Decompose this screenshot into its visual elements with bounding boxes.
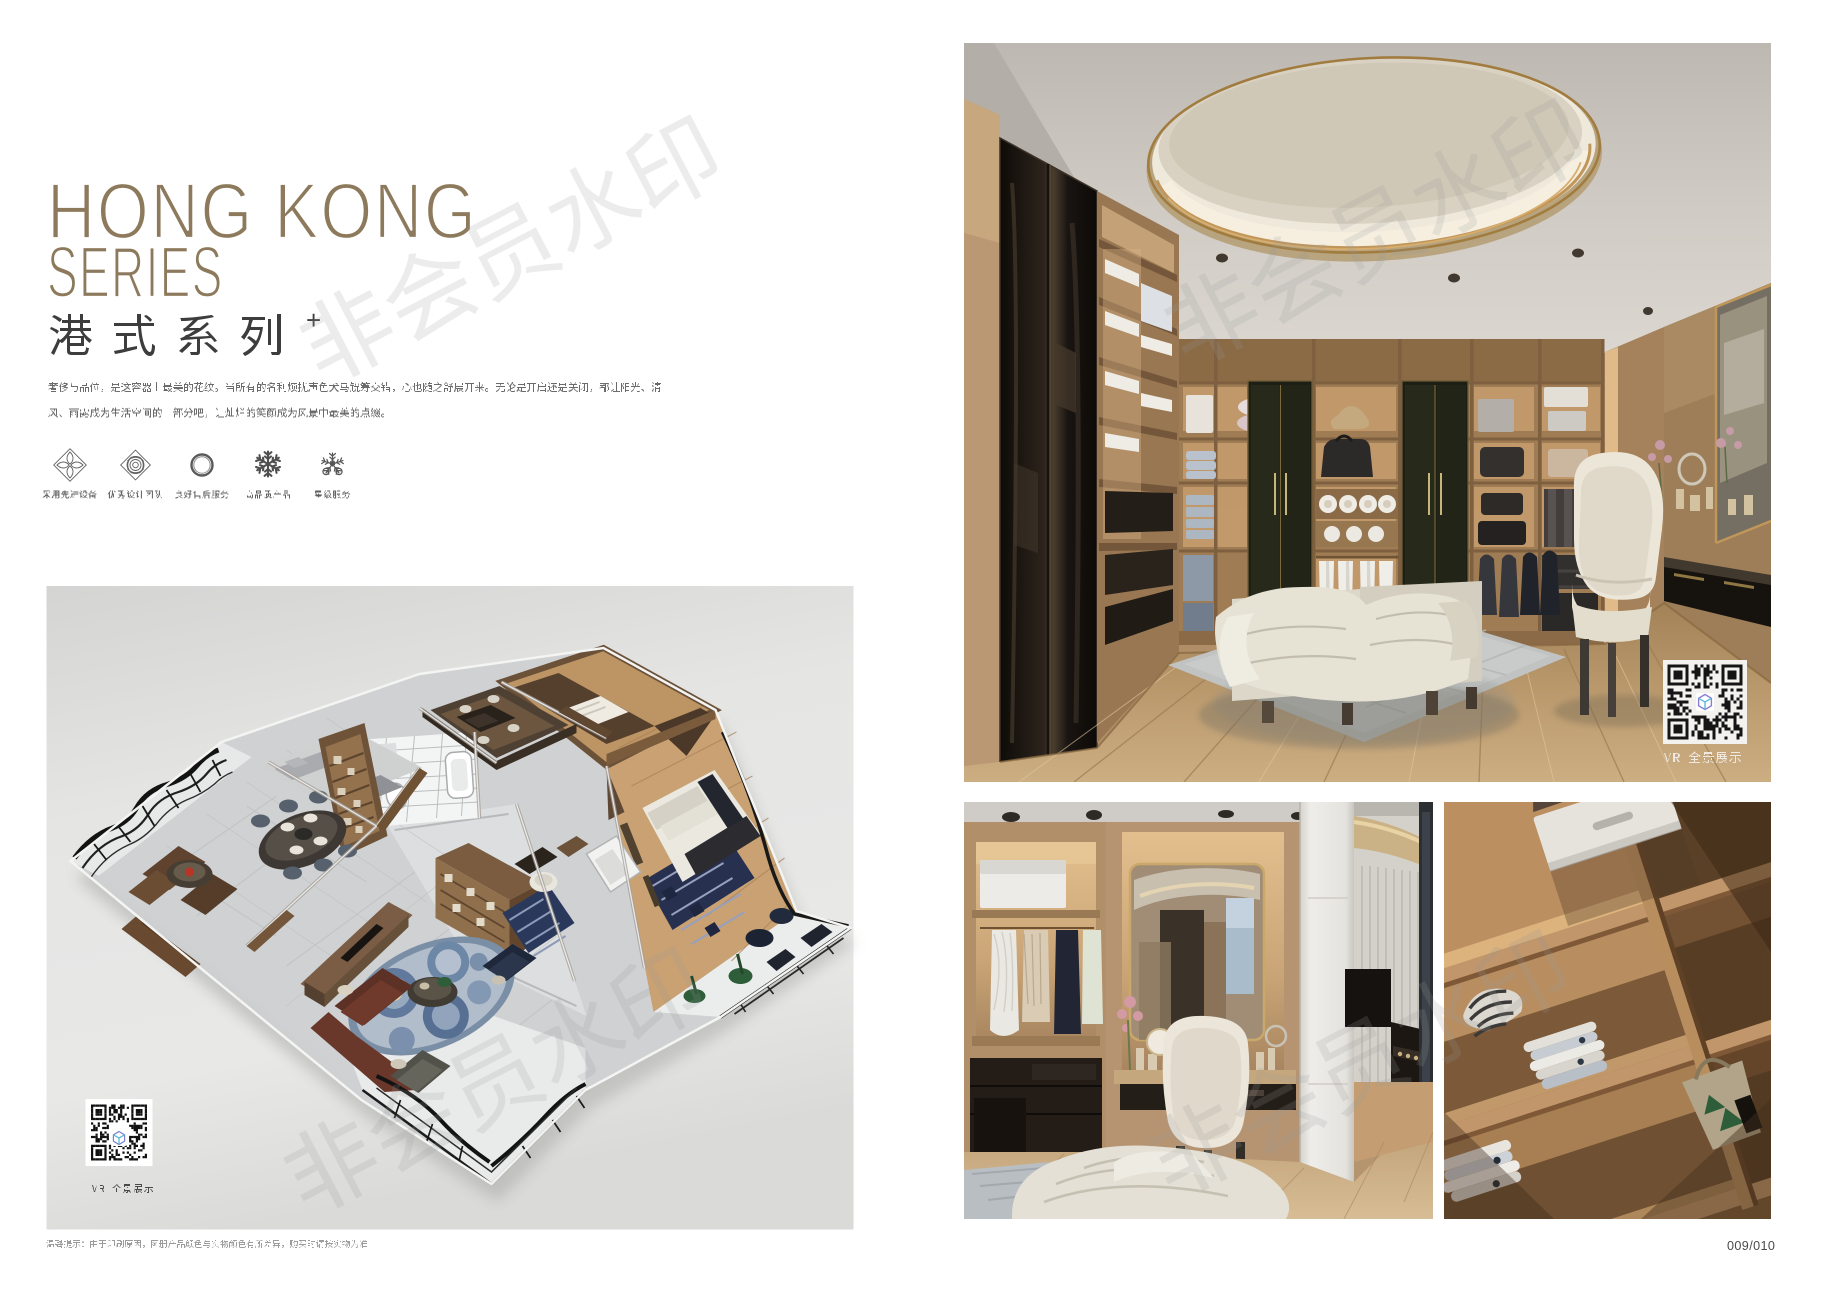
svg-text:009/010: 009/010 — [1727, 1239, 1775, 1253]
svg-text:SERIES: SERIES — [47, 231, 224, 312]
